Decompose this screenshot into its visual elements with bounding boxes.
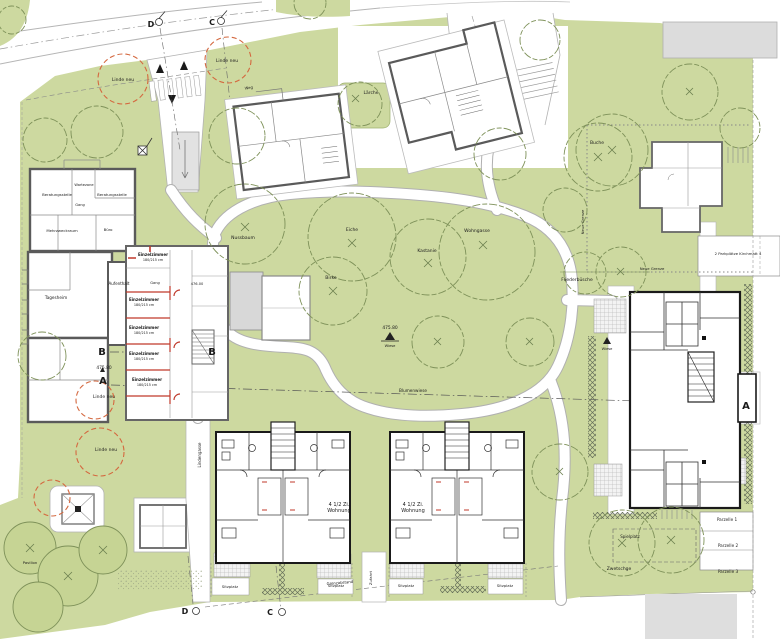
- building-neighbor-south: [645, 594, 737, 639]
- unit-label-einzelzimmer: Einzelzimmer: [129, 325, 159, 330]
- gravel-strip: [118, 570, 202, 590]
- lane-center: [362, 552, 386, 602]
- label-neue-grenze: Neue Grenze: [640, 266, 665, 271]
- label-neue-grenze: Neue Grenze: [580, 209, 585, 234]
- section-marker-d: D: [182, 607, 189, 616]
- section-marker-a: A: [742, 401, 750, 412]
- hedge-strip: [593, 512, 657, 519]
- garage-ramp: [172, 132, 199, 190]
- label-wiese: Wiese: [602, 347, 614, 351]
- section-marker-d: D: [148, 20, 155, 29]
- pergola-strip: [588, 336, 596, 458]
- label-spielplatz: Spielplatz: [620, 534, 640, 539]
- unit-label-apartment: Wohnung: [327, 508, 351, 514]
- new-tree-label: Linde neu: [216, 58, 238, 64]
- unit-label-einzelzimmer: Einzelzimmer: [132, 377, 162, 382]
- stair-core: [271, 422, 295, 470]
- label-wiese: Wiese: [385, 344, 397, 348]
- parking-parcel: [698, 236, 780, 276]
- balcony-grid: [594, 299, 626, 333]
- trafo-building: [140, 505, 186, 548]
- balcony-grid: [594, 464, 622, 496]
- tree-label-laerche: Lärche: [363, 90, 378, 96]
- label-sitzplatz: Sitzplatz: [222, 584, 238, 589]
- room-label-tagesheim: Tagesheim: [44, 295, 67, 300]
- unit-label-einzelzimmer: Einzelzimmer: [138, 252, 168, 257]
- new-tree-label: Linde neu: [95, 447, 117, 453]
- building-duplex-west: [216, 422, 350, 563]
- room-label-buero: Büro: [104, 227, 113, 232]
- label-blumenwiese: Blumenwiese: [399, 388, 427, 393]
- section-node: [279, 609, 286, 616]
- room-label-beratungsstelle: Beratungsstelle: [97, 192, 127, 197]
- label-wohngasse: Wohngasse: [464, 228, 490, 234]
- site-plan-svg: NussbaumEicheBirkeKastanieWohngasseBuche…: [0, 0, 780, 639]
- label-lindengasse: Lindengasse: [197, 442, 202, 468]
- tree-label-eiche: Eiche: [346, 227, 358, 233]
- tree-label-kastanie: Kastanie: [417, 248, 437, 254]
- new-tree-label: Linde neu: [93, 394, 115, 400]
- unit-label-dims: 180/215 cm: [143, 258, 164, 262]
- tree-label-zwetschge: Zwetschge: [607, 566, 632, 572]
- section-marker-c: C: [267, 608, 273, 617]
- level-mark: 475.80: [96, 365, 112, 371]
- room-label-wartezone: Wartezone: [74, 183, 94, 187]
- barn-gray: [230, 272, 263, 330]
- tree-label-fliederbuesche: Fliederbüsche: [561, 277, 593, 283]
- left-north-block: [30, 169, 135, 251]
- unit-label-dims: 180/215 cm: [134, 303, 155, 307]
- entry-vestibule: [738, 374, 756, 422]
- hedge-strip: [440, 586, 486, 593]
- unit-label-dims: 180/215 cm: [134, 357, 155, 361]
- section-marker-b: B: [98, 347, 106, 358]
- site-plan-canvas: NussbaumEicheBirkeKastanieWohngasseBuche…: [0, 0, 780, 639]
- section-node: [156, 19, 163, 26]
- stair-core: [688, 352, 714, 402]
- unit-label-einzelzimmer: Einzelzimmer: [129, 297, 159, 302]
- hedge-strip: [262, 588, 304, 595]
- label-parkplaetze: 2 Parkplätze Kirchmatt 4: [715, 251, 762, 256]
- unit-label-apartment: Wohnung: [401, 508, 425, 514]
- label-zufahrt: Zufahrt: [368, 570, 373, 585]
- section-marker-a: A: [99, 376, 107, 387]
- room-label-aufenthalt: Aufenthalt: [109, 281, 130, 286]
- label-parzelle-2: Parzelle 2: [718, 543, 739, 548]
- unit-label-einzelzimmer: Einzelzimmer: [129, 351, 159, 356]
- building-neighbor-north: [663, 22, 777, 58]
- room-label-gang: Gang: [150, 281, 160, 285]
- new-tree-label: Linde neu: [112, 77, 134, 83]
- lawn-top-sliver: [276, 0, 350, 17]
- label-pavillon: Pavillon: [23, 560, 38, 565]
- tree-label-buche: Buche: [590, 140, 604, 146]
- level-mark: 476.00: [191, 282, 204, 286]
- section-marker-c: C: [209, 18, 215, 27]
- section-node: [193, 608, 200, 615]
- section-node: [218, 18, 225, 25]
- label-sitzplatz: Sitzplatz: [497, 583, 513, 588]
- room-label-mehrzweckraum: Mehrzweckraum: [46, 228, 78, 233]
- section-marker-b: B: [208, 347, 216, 358]
- label-parzelle-1: Parzelle 1: [717, 517, 738, 522]
- room-label-beratungsstelle: Beratungsstelle: [42, 192, 72, 197]
- building-duplex-east: [390, 422, 524, 563]
- building-top-center: [224, 81, 358, 199]
- unit-label-dims: 180/215 cm: [134, 331, 155, 335]
- label-parzelle-3: Parzelle 3: [718, 569, 739, 574]
- level-mark: 475.80: [382, 325, 398, 331]
- tree-label-nussbaum: Nussbaum: [231, 235, 255, 241]
- tree-label-birke: Birke: [325, 275, 337, 281]
- unit-label-dims: 180/215 cm: [137, 383, 158, 387]
- label-sitzplatz: Sitzplatz: [398, 583, 414, 588]
- stair-core: [445, 422, 469, 470]
- room-label-gang: Gang: [75, 203, 85, 207]
- walls: [234, 94, 349, 190]
